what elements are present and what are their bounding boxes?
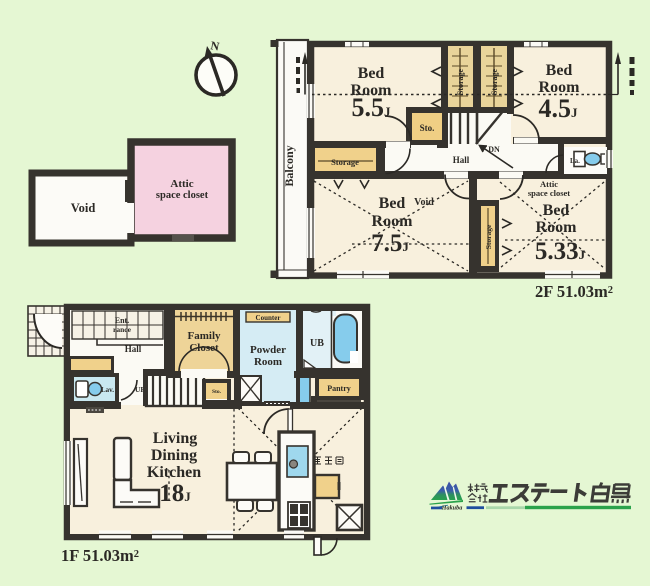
svg-text:Hall: Hall <box>125 344 142 354</box>
svg-text:Sto.: Sto. <box>420 123 435 133</box>
svg-text:Void: Void <box>71 201 96 215</box>
svg-text:Bed: Bed <box>543 202 570 219</box>
svg-text:space closet: space closet <box>528 188 570 198</box>
svg-text:rance: rance <box>113 325 132 334</box>
svg-text:Room: Room <box>372 213 414 230</box>
svg-text:Closet: Closet <box>189 342 219 354</box>
svg-text:Kitchen: Kitchen <box>147 464 201 481</box>
svg-text:Ent.: Ent. <box>115 316 129 325</box>
svg-text:Storage: Storage <box>331 157 359 167</box>
svg-text:UB: UB <box>310 338 324 349</box>
svg-text:Pantry: Pantry <box>327 384 351 393</box>
svg-text:Void: Void <box>414 197 434 208</box>
svg-text:Lav.: Lav. <box>101 386 114 394</box>
svg-text:Family: Family <box>188 330 221 342</box>
svg-text:space closet: space closet <box>156 190 209 201</box>
svg-text:Balcony: Balcony <box>282 145 296 186</box>
svg-text:Counter: Counter <box>256 314 281 322</box>
svg-text:Sto.: Sto. <box>212 389 222 395</box>
svg-text:Room: Room <box>254 356 282 368</box>
svg-text:1F 51.03m2: 1F 51.03m2 <box>61 546 139 565</box>
svg-text:Bed: Bed <box>546 62 573 79</box>
svg-text:Powder: Powder <box>250 344 286 356</box>
svg-text:5.33J: 5.33J <box>535 238 586 265</box>
svg-text:Bed: Bed <box>358 65 385 82</box>
svg-text:DN: DN <box>488 145 500 154</box>
svg-text:Room: Room <box>536 219 578 236</box>
svg-text:2F 51.03m2: 2F 51.03m2 <box>535 282 613 301</box>
svg-text:Hall: Hall <box>453 155 470 165</box>
svg-text:Dining: Dining <box>151 447 197 464</box>
svg-text:Hakuba: Hakuba <box>441 505 463 512</box>
svg-text:La.: La. <box>570 157 580 165</box>
svg-text:Bed: Bed <box>379 195 406 212</box>
svg-text:Storage: Storage <box>484 224 493 249</box>
svg-text:Attic: Attic <box>170 178 193 190</box>
svg-text:Storage: Storage <box>490 68 499 95</box>
svg-text:Living: Living <box>153 430 197 447</box>
svg-text:Storage: Storage <box>456 68 465 95</box>
